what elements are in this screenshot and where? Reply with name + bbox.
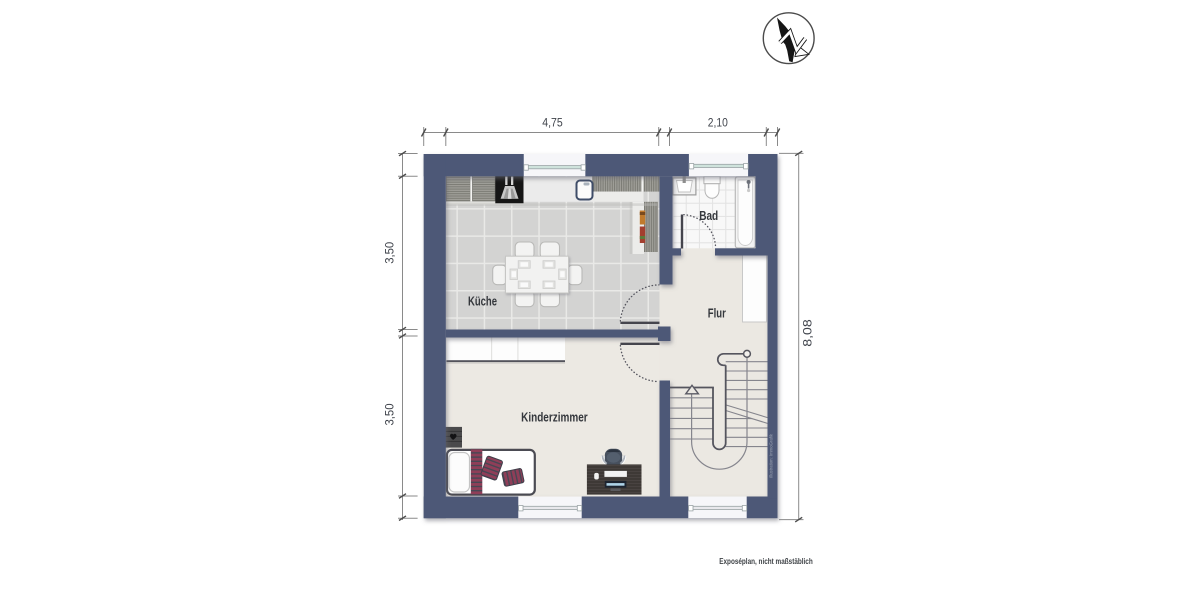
svg-text:2,10: 2,10 [708, 117, 728, 130]
svg-text:Illustration: ImmoGrafik: Illustration: ImmoGrafik [769, 433, 774, 478]
svg-text:Kinderzimmer: Kinderzimmer [521, 411, 588, 425]
svg-text:Flur: Flur [708, 307, 726, 321]
svg-text:8,08: 8,08 [802, 319, 815, 347]
svg-text:Küche: Küche [468, 295, 497, 309]
svg-text:4,75: 4,75 [542, 117, 563, 130]
svg-text:3,50: 3,50 [384, 404, 397, 426]
svg-text:Bad: Bad [699, 209, 718, 223]
svg-text:3,50: 3,50 [384, 242, 397, 264]
svg-text:Exposéplan, nicht maßstäblich: Exposéplan, nicht maßstäblich [719, 557, 813, 566]
